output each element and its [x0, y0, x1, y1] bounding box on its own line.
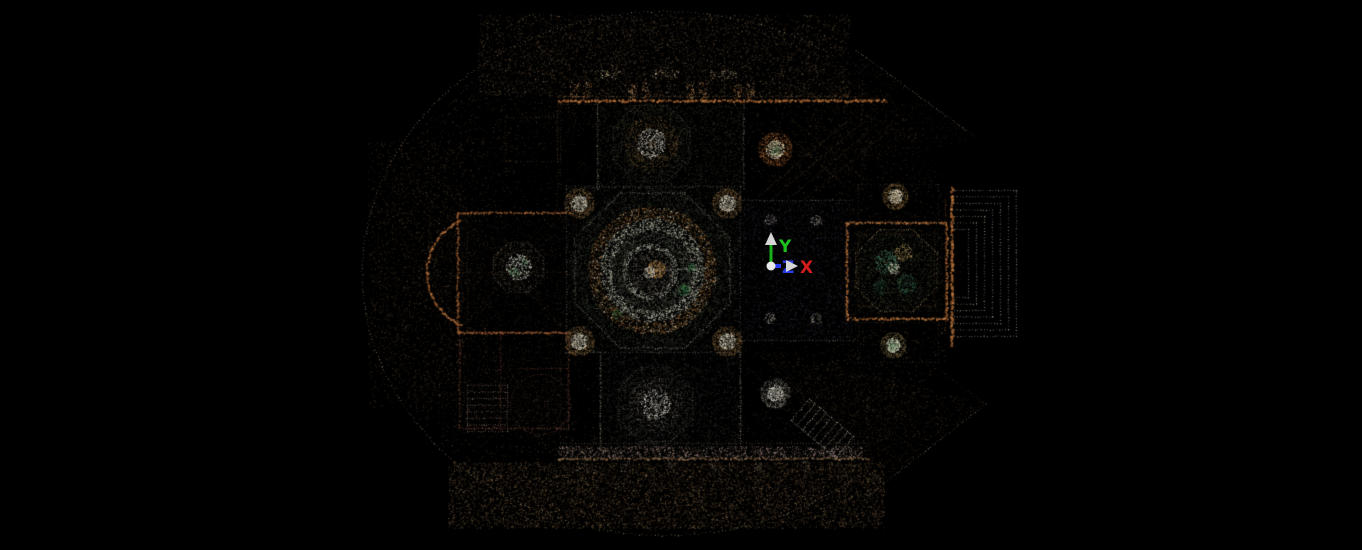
point-cloud-viewport[interactable]: Y Z X: [0, 0, 1362, 550]
point-cloud-canvas[interactable]: [0, 0, 1362, 550]
